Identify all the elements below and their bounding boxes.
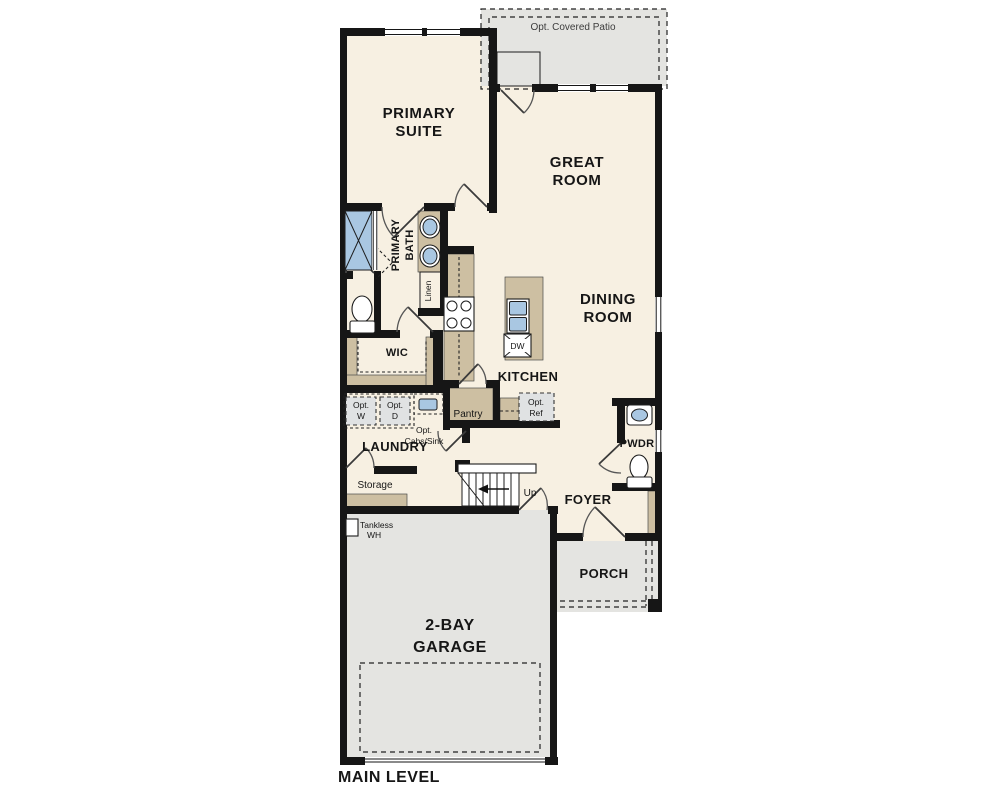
ref-counter: [500, 398, 519, 421]
wall: [590, 84, 596, 92]
wall: [532, 84, 558, 92]
wall: [655, 84, 662, 297]
up-label: Up: [524, 488, 537, 499]
wall: [550, 506, 557, 765]
opt-cabs-sink-label: Opt.: [416, 425, 432, 435]
floor-plan-page: DW Opt. Covered Patio PRIMARY SUITE: [0, 0, 1000, 800]
wall: [440, 203, 448, 312]
window: [558, 84, 590, 92]
garage-label: 2-BAY: [425, 617, 475, 634]
svg-text:ROOM: ROOM: [552, 172, 601, 189]
window: [596, 84, 628, 92]
pantry-label: Pantry: [454, 409, 483, 420]
primary-bath-label: PRIMARY: [390, 218, 402, 271]
wic-label: WIC: [386, 347, 408, 359]
window: [655, 430, 662, 452]
opt-washer-label: Opt.: [353, 400, 369, 410]
opt-ref-label: Opt.: [528, 397, 544, 407]
svg-text:Ref: Ref: [529, 408, 543, 418]
wall: [443, 388, 450, 430]
svg-text:ROOM: ROOM: [583, 309, 632, 326]
svg-text:GARAGE: GARAGE: [413, 639, 487, 656]
opt-dryer-label: Opt.: [387, 400, 403, 410]
laundry-sink-icon: [419, 399, 437, 410]
wall: [340, 506, 519, 514]
window: [655, 297, 662, 332]
powder-label: PWDR: [620, 438, 655, 450]
shower-icon: [345, 211, 378, 270]
svg-text:BATH: BATH: [404, 230, 416, 261]
tankless-label: Tankless: [360, 520, 393, 530]
window: [385, 28, 422, 36]
patio-label: Opt. Covered Patio: [530, 22, 615, 33]
svg-text:SUITE: SUITE: [395, 123, 442, 140]
wall: [655, 406, 662, 430]
svg-text:D: D: [392, 411, 398, 421]
wall: [655, 491, 662, 541]
porch-label: PORCH: [580, 566, 629, 581]
porch-right-edge: [658, 541, 662, 612]
svg-text:WH: WH: [367, 530, 381, 540]
wall: [422, 28, 427, 36]
primary-suite-label: PRIMARY: [383, 105, 456, 122]
island-sink-icon: [507, 299, 529, 333]
tankless-water-heater-icon: [346, 519, 358, 536]
dishwasher-label: DW: [510, 341, 524, 351]
wall: [489, 28, 497, 213]
foyer-label: FOYER: [565, 492, 612, 507]
wall: [462, 428, 470, 443]
dining-room-label: DINING: [580, 291, 636, 308]
kitchen-label: KITCHEN: [498, 369, 559, 384]
garage-door-opening: [365, 757, 545, 765]
vanity-sink-icon: [420, 216, 440, 238]
svg-text:Cabs/Sink: Cabs/Sink: [405, 436, 444, 446]
great-room-label: GREAT: [550, 154, 604, 171]
pedestal-sink-icon: [627, 405, 652, 425]
wall: [374, 466, 417, 474]
garage-area: [344, 510, 553, 760]
window: [427, 28, 460, 36]
wall: [443, 420, 560, 428]
plan-title: MAIN LEVEL: [338, 769, 440, 786]
linen-label: Linen: [423, 280, 433, 301]
storage-label: Storage: [357, 480, 392, 491]
wall: [433, 330, 443, 388]
wall: [655, 332, 662, 398]
vanity-sink-icon: [420, 245, 440, 267]
range-icon: [444, 297, 474, 331]
floor-plan-drawing: DW Opt. Covered Patio PRIMARY SUITE: [0, 0, 1000, 800]
wall: [556, 533, 583, 541]
wall: [655, 452, 662, 483]
wall: [493, 388, 500, 428]
dishwasher-icon: DW: [504, 334, 531, 357]
storage-shelf: [345, 494, 407, 507]
patio-area: [481, 9, 667, 86]
stair-landing: [458, 464, 536, 473]
wall: [340, 385, 443, 393]
svg-text:W: W: [357, 411, 365, 421]
wall: [617, 398, 625, 443]
wall: [424, 203, 455, 211]
